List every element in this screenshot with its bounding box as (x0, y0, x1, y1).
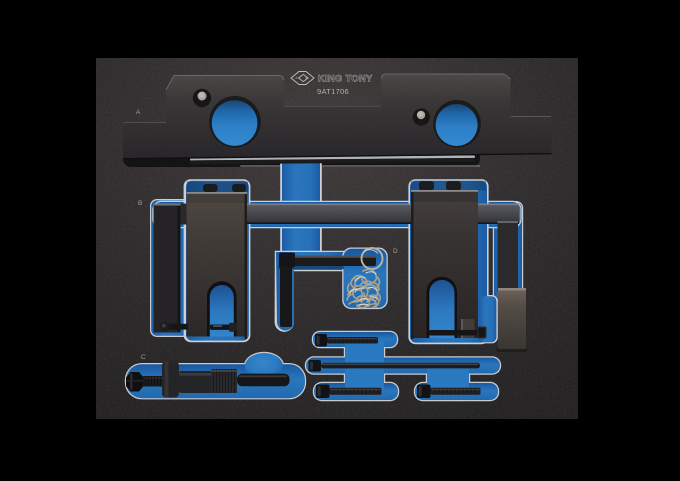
svg-text:9AT1706: 9AT1706 (317, 87, 349, 96)
svg-text:C: C (141, 354, 146, 361)
svg-text:B: B (138, 200, 142, 207)
svg-text:D: D (393, 248, 398, 255)
svg-text:KING TONY: KING TONY (318, 74, 373, 84)
svg-text:A: A (136, 109, 141, 116)
